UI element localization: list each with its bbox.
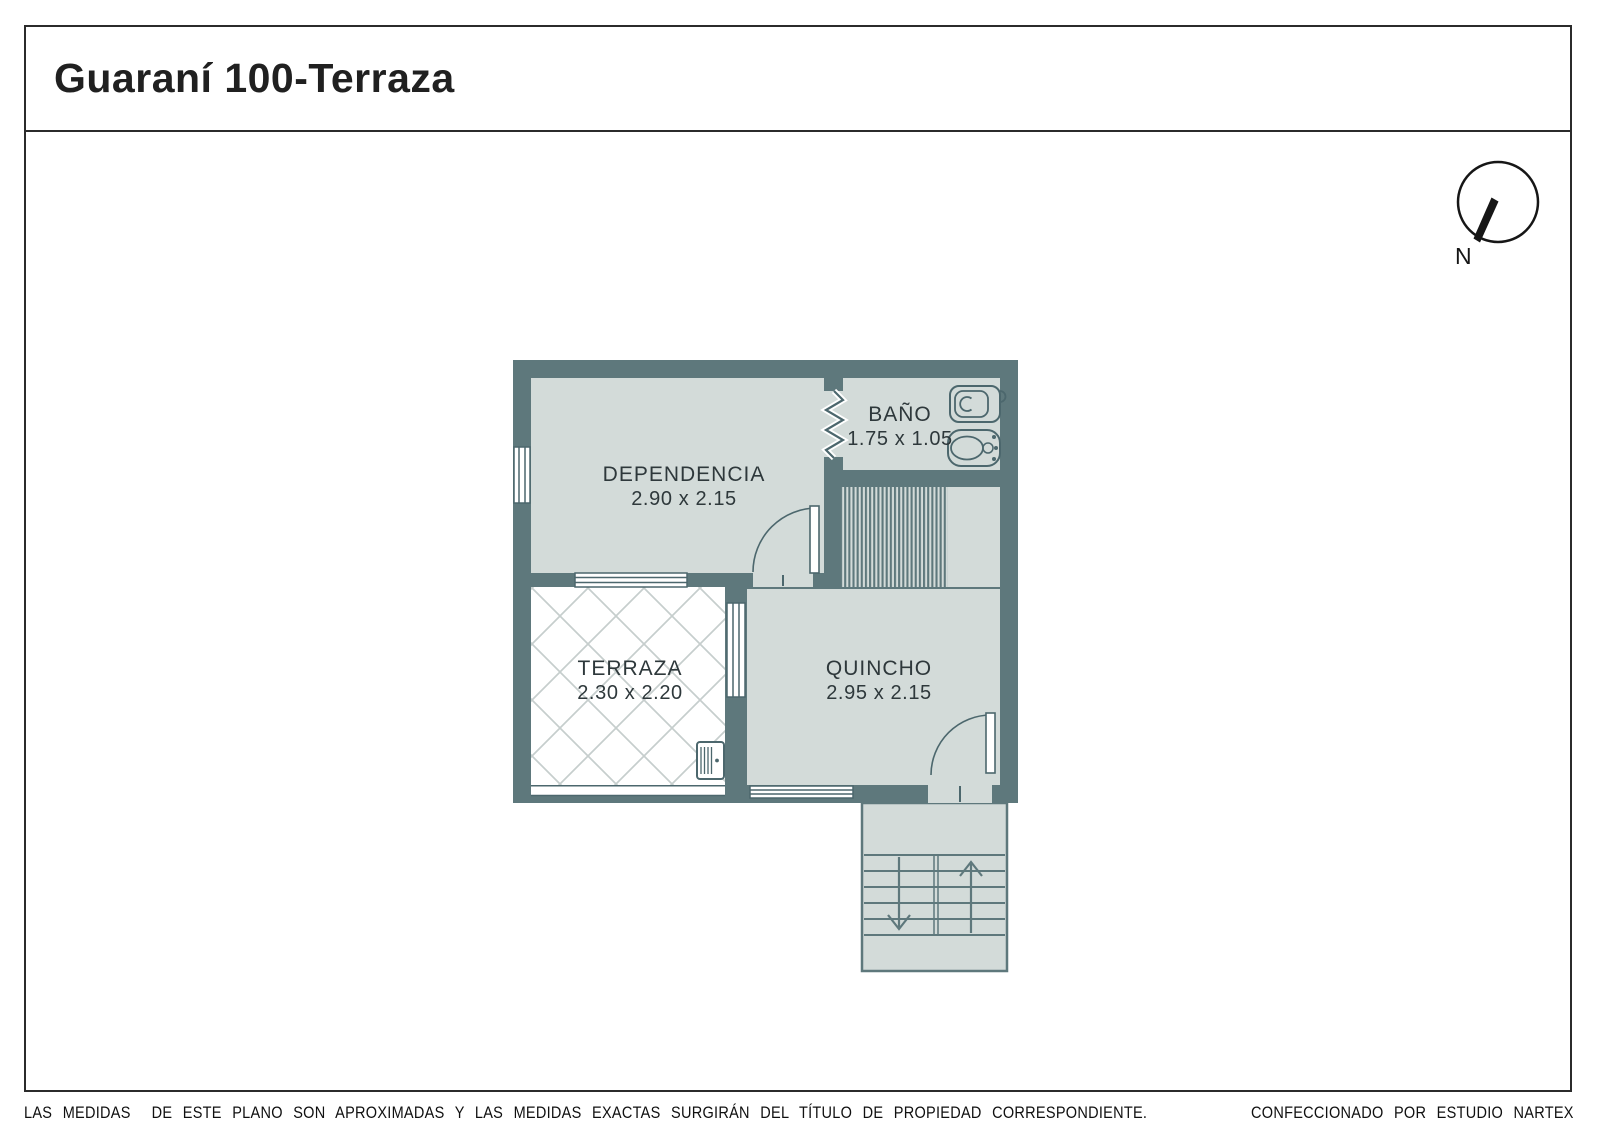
compass-icon [1458,162,1538,243]
wall-bano-bottom [824,470,1000,487]
footer: LAS MEDIDAS DE ESTE PLANO SON APROXIMADA… [0,1101,1600,1129]
wall-hall-left [824,487,840,587]
north-label: N [1455,243,1472,270]
footer-credit: CONFECCIONADO POR ESTUDIO NARTEX [1251,1104,1574,1123]
footer-disclaimer: LAS MEDIDAS DE ESTE PLANO SON APROXIMADA… [24,1104,1147,1123]
room-dimensions: 1.75 x 1.05 [847,427,953,451]
room-dimensions: 2.30 x 2.20 [577,681,683,705]
room-label-quincho: QUINCHO 2.95 x 2.15 [826,657,932,705]
room-label-dependencia: DEPENDENCIA 2.90 x 2.15 [603,463,766,511]
exterior-staircase [862,803,1007,971]
floor-plan-page: Guaraní 100-Terraza [0,0,1600,1131]
interior-stairs-treads [840,487,948,588]
window-dependencia-terraza [575,573,687,587]
room-label-bano: BAÑO 1.75 x 1.05 [847,403,953,451]
window-terraza-quincho [727,603,745,697]
room-name: BAÑO [847,403,953,427]
toilet-icon [950,386,1006,422]
room-name: DEPENDENCIA [603,463,766,487]
room-dimensions: 2.90 x 2.15 [603,487,766,511]
room-name: TERRAZA [577,657,683,681]
wall-zigzag-stub-top [824,378,843,391]
grill-icon [697,742,724,779]
wall-zigzag-stub-bottom [824,457,843,470]
wall-left [513,360,531,803]
window-dependencia-left [514,447,530,503]
room-label-terraza: TERRAZA 2.30 x 2.20 [577,657,683,705]
wall-right [1000,360,1018,803]
floor-plan-drawing [0,0,1600,1131]
wall-top [513,360,1018,378]
room-dimensions: 2.95 x 2.15 [826,681,932,705]
terraza-railing-opening [531,785,725,796]
bidet-icon [948,430,1000,466]
window-quincho-bottom [750,786,853,798]
room-name: QUINCHO [826,657,932,681]
